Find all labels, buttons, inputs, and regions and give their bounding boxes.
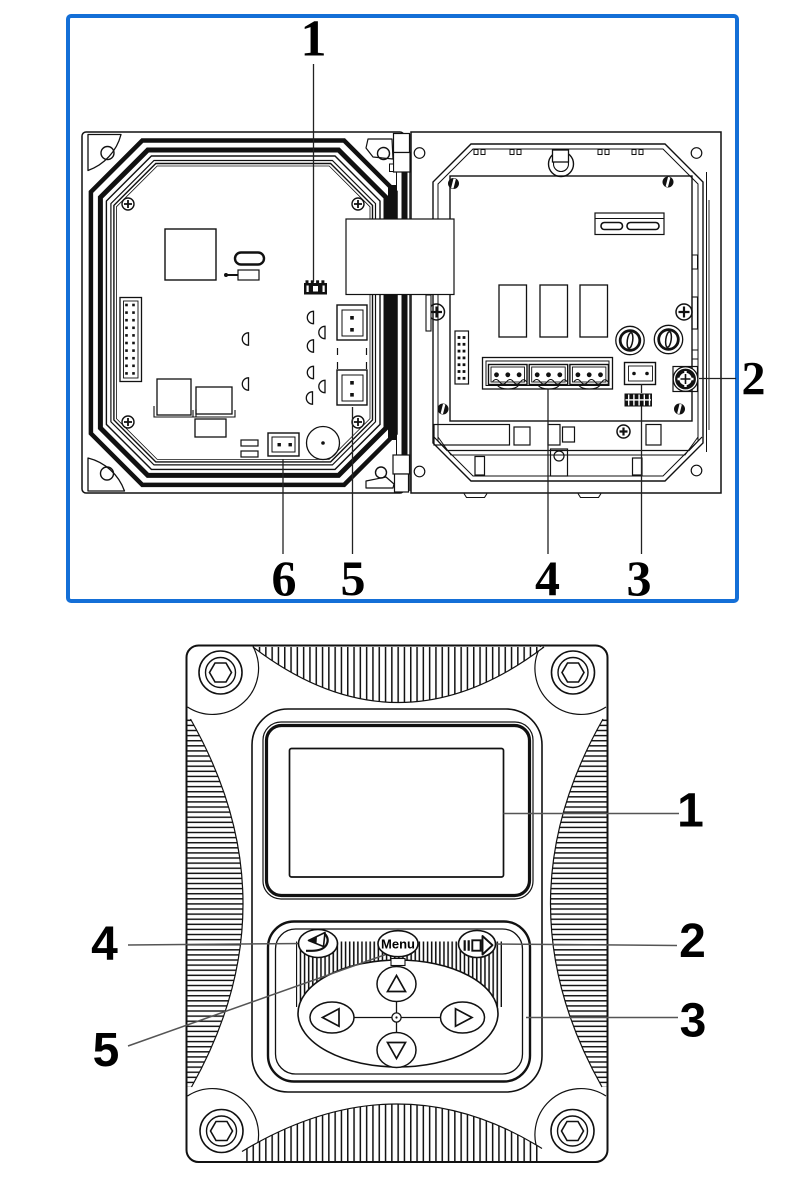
svg-text:1: 1: [677, 785, 704, 838]
svg-text:5: 5: [341, 550, 366, 606]
svg-text:3: 3: [680, 995, 707, 1048]
svg-text:1: 1: [301, 11, 327, 68]
svg-text:2: 2: [742, 353, 766, 406]
svg-text:Menu: Menu: [381, 936, 415, 951]
svg-text:6: 6: [272, 550, 297, 606]
svg-text:5: 5: [93, 1024, 120, 1077]
svg-text:4: 4: [91, 918, 118, 971]
svg-text:2: 2: [679, 915, 706, 968]
svg-text:3: 3: [627, 550, 652, 606]
svg-text:4: 4: [535, 550, 560, 606]
